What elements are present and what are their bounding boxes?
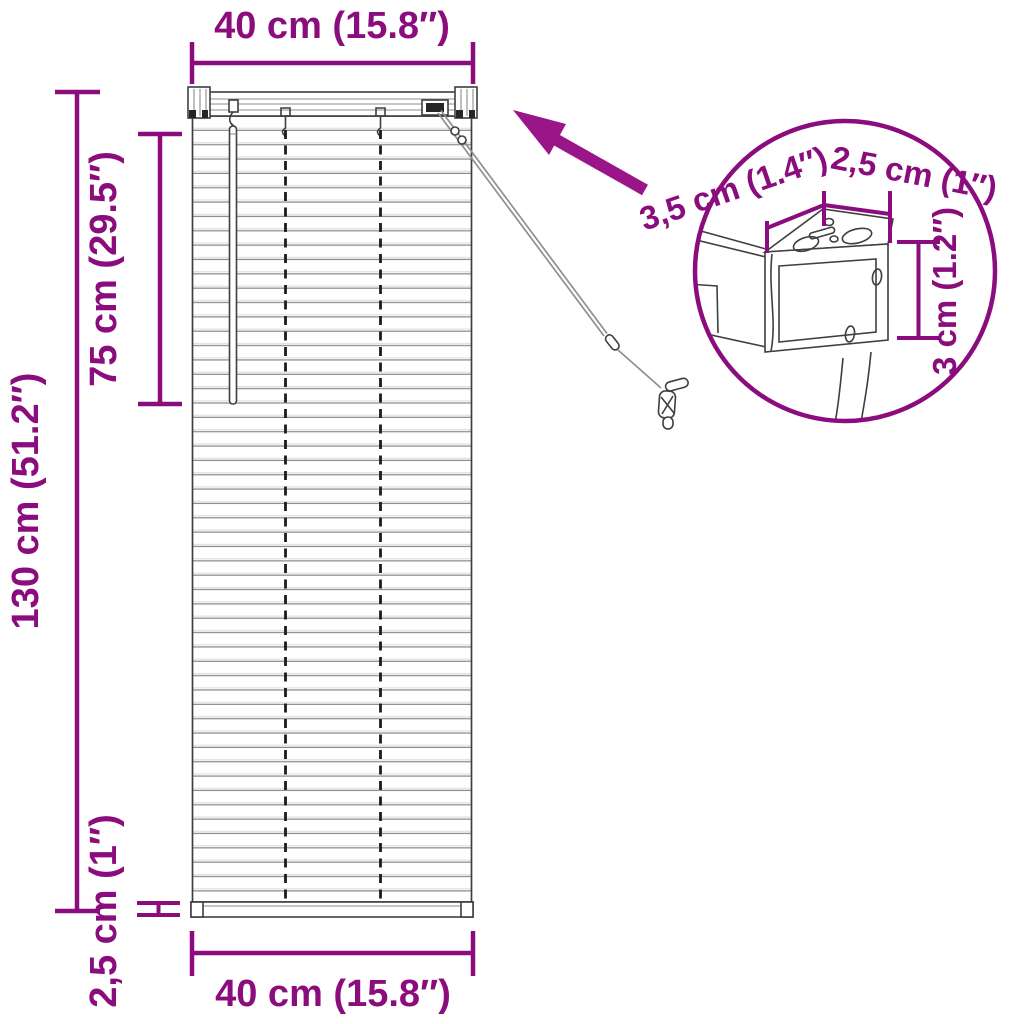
bracket-height-label: 3 cm (1.2″): [926, 207, 963, 375]
dim-top-width: 40 cm (15.8″): [192, 5, 473, 84]
pull-cord: [438, 111, 689, 430]
cord-outlet: [422, 100, 448, 115]
bottom-width-label: 40 cm (15.8″): [215, 973, 451, 1015]
bottom-rail-height-label: 2,5 cm (1″): [83, 814, 125, 1008]
wand-length-label: 75 cm (29.5″): [83, 151, 125, 387]
zoom-arrow-icon: [513, 110, 645, 190]
dim-wand-length: 75 cm (29.5″): [83, 134, 182, 404]
detail-inset: 3,5 cm (1.4″) 2,5 cm (1″) 3 cm (1.2″): [635, 121, 1000, 423]
headrail-left-bracket: [188, 87, 210, 118]
bottom-rail: [191, 902, 473, 917]
headrail-right-bracket: [455, 87, 477, 118]
bracket-width-label: 2,5 cm (1″): [828, 139, 1000, 207]
dim-bottom-rail-height: 2,5 cm (1″): [83, 814, 180, 1008]
blind-drawing: [188, 87, 689, 917]
blind-dimension-diagram: 3,5 cm (1.4″) 2,5 cm (1″) 3 cm (1.2″) 40…: [0, 0, 1024, 1024]
tilt-wand: [229, 100, 238, 404]
top-width-label: 40 cm (15.8″): [214, 5, 450, 47]
bracket-drawing: [688, 209, 893, 423]
mounting-bracket: [765, 209, 893, 423]
diagram-page: 3,5 cm (1.4″) 2,5 cm (1″) 3 cm (1.2″) 40…: [0, 0, 1024, 1024]
dim-bottom-width: 40 cm (15.8″): [192, 931, 473, 1015]
bracket-depth-label: 3,5 cm (1.4″): [635, 139, 832, 238]
total-height-label: 130 cm (51.2″): [5, 373, 47, 630]
cord-tassel: [658, 377, 689, 429]
